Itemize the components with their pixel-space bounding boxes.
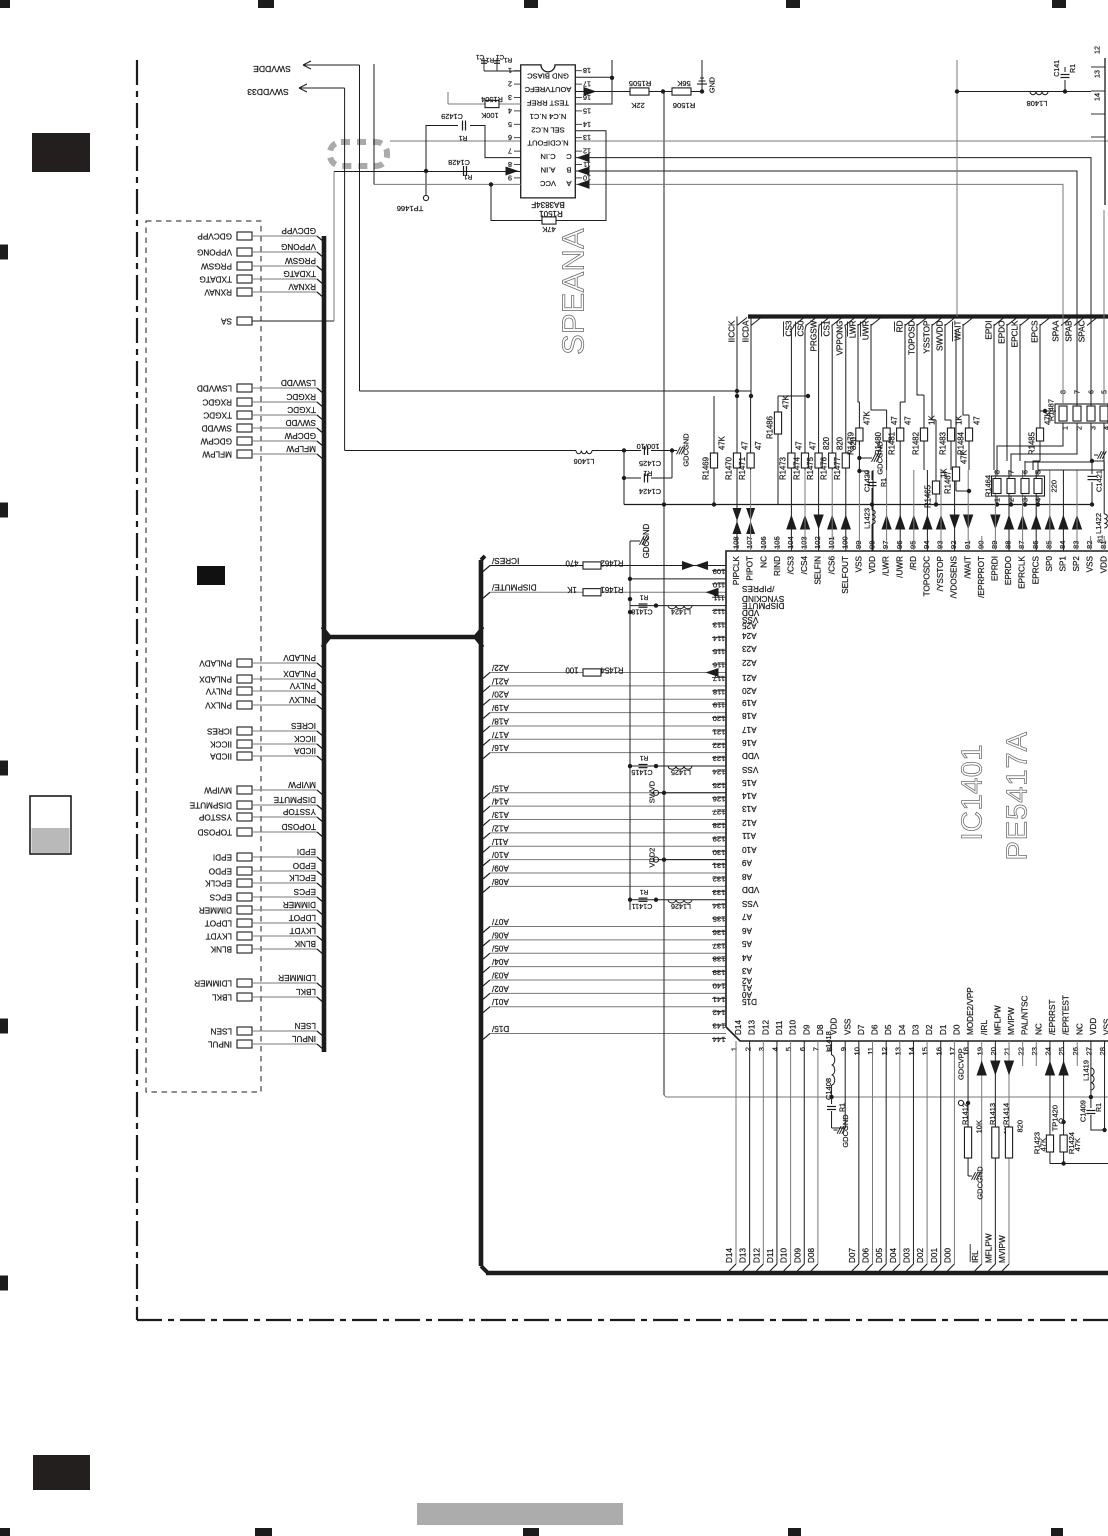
svg-text:L1422: L1422 [1094, 513, 1103, 534]
svg-text:47: 47 [903, 416, 912, 425]
svg-text:/LWR: /LWR [882, 556, 891, 576]
svg-text:A14: A14 [742, 791, 757, 800]
svg-text:A7: A7 [742, 912, 752, 921]
svg-text:A07/: A07/ [491, 917, 509, 926]
svg-text:A24: A24 [742, 631, 757, 640]
svg-text:107: 107 [745, 536, 754, 549]
svg-text:A9: A9 [742, 858, 752, 867]
svg-text:R1470: R1470 [724, 456, 733, 480]
svg-text:47: 47 [972, 416, 981, 425]
svg-text:C1420: C1420 [863, 470, 872, 492]
svg-text:LBKL: LBKL [212, 993, 232, 1002]
svg-text:L1424: L1424 [671, 608, 691, 617]
svg-text:MFLPW: MFLPW [984, 1233, 993, 1263]
svg-text:A22: A22 [742, 658, 757, 667]
svg-text:A22/: A22/ [491, 663, 509, 672]
svg-text:100: 100 [565, 665, 579, 674]
svg-text:89: 89 [990, 541, 999, 549]
svg-text:A10: A10 [742, 845, 757, 854]
svg-text:CS1: CS1 [823, 320, 832, 336]
svg-text:DISPMUTE: DISPMUTE [189, 801, 232, 810]
svg-text:VSS: VSS [741, 765, 758, 774]
svg-text:VDD: VDD [742, 751, 759, 760]
svg-text:47K: 47K [542, 225, 556, 234]
svg-text:15: 15 [921, 1047, 930, 1055]
svg-text:9: 9 [839, 1047, 848, 1051]
svg-text:SWVDD: SWVDD [936, 320, 945, 351]
svg-text:R1474: R1474 [792, 456, 801, 480]
svg-text:VPPONG: VPPONG [281, 242, 316, 251]
svg-text:104: 104 [786, 536, 795, 549]
svg-text:L1419: L1419 [1081, 1060, 1090, 1081]
svg-text:143: 143 [713, 1022, 726, 1031]
svg-text:A17: A17 [742, 725, 757, 734]
svg-text:GDCGND: GDCGND [876, 441, 885, 475]
svg-text:129: 129 [713, 834, 726, 843]
svg-text:27: 27 [1085, 1047, 1094, 1055]
svg-text:VSS: VSS [843, 1018, 852, 1035]
svg-text:A16: A16 [742, 738, 757, 747]
svg-text:PNLYV: PNLYV [289, 681, 316, 690]
svg-text:RXNAV: RXNAV [204, 288, 232, 297]
svg-text:85: 85 [1044, 541, 1053, 549]
svg-text:2: 2 [1074, 426, 1083, 430]
svg-text:R1: R1 [639, 888, 648, 895]
svg-text:YSSTOP: YSSTOP [923, 320, 932, 354]
svg-text:TXGDC: TXGDC [287, 405, 316, 414]
svg-text:TOPOSD: TOPOSD [197, 828, 232, 837]
svg-text:R1465: R1465 [923, 484, 932, 508]
svg-text:3: 3 [757, 1047, 766, 1051]
svg-text:A19/: A19/ [491, 703, 509, 712]
svg-text:RD: RD [896, 320, 905, 332]
svg-text:D10: D10 [789, 1020, 798, 1035]
svg-text:/PIPRES: /PIPRES [741, 584, 774, 593]
svg-text:100: 100 [840, 536, 849, 549]
svg-text:MVIPW: MVIPW [204, 786, 232, 795]
svg-text:VDD: VDD [1099, 556, 1108, 573]
svg-text:A25: A25 [742, 621, 757, 630]
svg-text:D15/: D15/ [491, 1024, 509, 1033]
svg-text:NC: NC [1075, 1023, 1084, 1035]
svg-text:LDPOT: LDPOT [205, 919, 232, 928]
svg-text:A08/: A08/ [491, 877, 509, 886]
svg-text:INPUL: INPUL [207, 1040, 232, 1049]
svg-text:118: 118 [713, 687, 725, 696]
svg-text:EPDI: EPDI [985, 321, 994, 340]
svg-text:BLNK: BLNK [210, 945, 232, 954]
svg-text:90: 90 [976, 541, 985, 549]
svg-text:R1479: R1479 [847, 432, 856, 455]
svg-text:A12/: A12/ [491, 823, 509, 832]
svg-text:PNLADX: PNLADX [199, 675, 232, 684]
svg-text:C1421: C1421 [1095, 470, 1104, 492]
svg-text:SWVDD: SWVDD [201, 424, 232, 433]
svg-text:D10: D10 [780, 1248, 789, 1263]
svg-text:D08: D08 [807, 1248, 816, 1263]
svg-text:EPDO: EPDO [293, 861, 316, 870]
svg-text:EPRCS: EPRCS [1031, 555, 1040, 584]
svg-text:VCC: VCC [539, 179, 556, 188]
svg-text:R1414: R1414 [1002, 1103, 1011, 1125]
svg-text:LDPOT: LDPOT [289, 913, 316, 922]
svg-text:2: 2 [743, 1047, 752, 1051]
svg-text:A13: A13 [742, 804, 757, 813]
svg-text:C1: C1 [495, 53, 504, 60]
svg-text:A.IN: A.IN [541, 166, 556, 175]
svg-text:56K: 56K [677, 79, 691, 88]
svg-text:D12: D12 [761, 1020, 770, 1035]
svg-text:117: 117 [713, 674, 725, 683]
svg-text:14: 14 [907, 1047, 916, 1055]
svg-text:SPAA: SPAA [1052, 320, 1061, 342]
svg-text:D3: D3 [912, 1024, 921, 1035]
svg-text:GDCVPP: GDCVPP [197, 232, 232, 241]
svg-text:UWR: UWR [862, 320, 871, 340]
svg-text:81: 81 [1096, 535, 1105, 543]
svg-text:A06/: A06/ [491, 930, 509, 939]
svg-text:140: 140 [713, 981, 726, 990]
svg-text:13: 13 [1092, 70, 1101, 78]
svg-text:YSSTOP: YSSTOP [282, 807, 316, 816]
svg-text:A21/: A21/ [491, 676, 509, 685]
svg-text:A13/: A13/ [491, 810, 509, 819]
svg-text:IICDA: IICDA [210, 752, 232, 761]
svg-text:YSSTOP: YSSTOP [198, 813, 232, 822]
svg-text:A16/: A16/ [491, 743, 509, 752]
svg-text:5: 5 [784, 1047, 793, 1051]
svg-text:A15: A15 [742, 778, 757, 787]
svg-text:28: 28 [1098, 1047, 1107, 1055]
svg-text:TXGDC: TXGDC [203, 411, 232, 420]
svg-text:D9: D9 [802, 1024, 811, 1035]
svg-text:L1406: L1406 [574, 457, 595, 466]
svg-text:95: 95 [908, 541, 917, 549]
svg-text:47K: 47K [1039, 1138, 1048, 1151]
svg-text:SELFIN: SELFIN [814, 556, 823, 585]
svg-text:PRGSW: PRGSW [201, 262, 232, 271]
svg-text:A18/: A18/ [491, 716, 509, 725]
svg-text:D11: D11 [766, 1248, 775, 1263]
svg-text:R1: R1 [1070, 64, 1077, 73]
svg-text:14: 14 [1092, 93, 1101, 101]
svg-text:SWVDD33: SWVDD33 [247, 87, 289, 97]
svg-text:83: 83 [1072, 541, 1081, 549]
svg-text:92: 92 [949, 541, 958, 549]
svg-text:EPDO: EPDO [209, 867, 232, 876]
svg-text:141: 141 [713, 995, 726, 1004]
svg-text:TXDATG: TXDATG [199, 275, 232, 284]
svg-text:470: 470 [565, 559, 579, 568]
svg-text:A17/: A17/ [491, 730, 509, 739]
svg-text:R1: R1 [463, 173, 472, 180]
svg-text:D7: D7 [857, 1024, 866, 1035]
svg-text:VDD: VDD [868, 556, 877, 573]
svg-text:EPCLK: EPCLK [289, 873, 316, 882]
svg-text:D14: D14 [734, 1020, 743, 1035]
svg-text:121: 121 [713, 727, 726, 736]
svg-text:47: 47 [740, 441, 749, 450]
svg-text:108: 108 [732, 536, 741, 549]
svg-text:97: 97 [881, 541, 890, 549]
svg-text:86: 86 [1031, 541, 1040, 549]
svg-text:BA3834F: BA3834F [531, 200, 564, 209]
svg-text:4: 4 [1101, 426, 1108, 430]
svg-text:106: 106 [759, 536, 768, 549]
svg-text:3: 3 [508, 93, 512, 102]
svg-text:114: 114 [713, 634, 725, 643]
svg-text:A4: A4 [742, 953, 752, 962]
svg-text:A09/: A09/ [491, 864, 509, 873]
svg-text:A12: A12 [742, 818, 757, 827]
svg-text:EPRDI: EPRDI [990, 556, 999, 581]
svg-text:SWVD: SWVD [648, 780, 657, 803]
svg-text:21: 21 [1003, 1047, 1012, 1055]
svg-text:A04/: A04/ [491, 957, 509, 966]
svg-text:C1428: C1428 [448, 158, 470, 167]
svg-text:MVIPW: MVIPW [288, 780, 316, 789]
svg-text:23: 23 [1030, 1047, 1039, 1055]
svg-text:PNLADV: PNLADV [199, 659, 232, 668]
svg-text:EPDI: EPDI [213, 853, 232, 862]
svg-text:EPRDO: EPRDO [1004, 556, 1013, 585]
svg-text:D2: D2 [925, 1024, 934, 1035]
svg-text:100K: 100K [481, 111, 498, 120]
svg-text:D6: D6 [871, 1024, 880, 1035]
svg-text:D13: D13 [748, 1020, 757, 1035]
svg-text:PIPCLK: PIPCLK [732, 555, 741, 585]
svg-text:/CS6: /CS6 [827, 556, 836, 575]
svg-text:IRL: IRL [971, 1250, 980, 1263]
svg-text:R1462: R1462 [601, 559, 624, 568]
svg-text:47: 47 [795, 441, 804, 450]
svg-text:R1486: R1486 [765, 416, 774, 439]
svg-text:VDD2: VDD2 [648, 848, 657, 868]
svg-text:GND BIASC: GND BIASC [527, 72, 569, 81]
svg-text:C1411: C1411 [632, 902, 653, 911]
svg-text:25: 25 [1057, 1047, 1066, 1055]
svg-text:132: 132 [713, 875, 726, 884]
svg-text:14: 14 [583, 120, 591, 129]
svg-text:R1482: R1482 [911, 432, 920, 455]
svg-text:11: 11 [866, 1047, 875, 1055]
svg-text:134: 134 [713, 901, 726, 910]
svg-text:136: 136 [713, 928, 726, 937]
svg-text:RXGDC: RXGDC [202, 398, 232, 407]
svg-text:138: 138 [713, 955, 726, 964]
svg-text:VSS: VSS [1103, 1018, 1108, 1035]
svg-text:D07: D07 [848, 1248, 857, 1263]
svg-text:D06: D06 [862, 1248, 871, 1263]
svg-text:R1: R1 [1096, 1103, 1103, 1112]
svg-text:LDIMMER: LDIMMER [278, 973, 316, 982]
svg-text:110: 110 [713, 580, 725, 589]
svg-text:EPCLK: EPCLK [205, 879, 232, 888]
svg-text:BLNK: BLNK [294, 939, 316, 948]
svg-text:DIMMER: DIMMER [199, 906, 232, 915]
svg-text:144: 144 [713, 1035, 726, 1044]
svg-text:820: 820 [822, 436, 831, 450]
svg-text:L1408: L1408 [1027, 99, 1048, 108]
svg-text:6: 6 [508, 133, 512, 142]
svg-text:119: 119 [713, 701, 725, 710]
svg-text:R1: R1 [639, 594, 648, 601]
svg-text:94: 94 [922, 541, 931, 549]
svg-text:/EPRPROT: /EPRPROT [977, 556, 986, 598]
svg-text:7: 7 [812, 1047, 821, 1051]
svg-text:13: 13 [583, 133, 591, 142]
svg-text:D12: D12 [752, 1248, 761, 1263]
svg-text:VSS: VSS [854, 555, 863, 572]
svg-text:C141: C141 [1054, 60, 1061, 77]
svg-text:20: 20 [989, 1047, 998, 1055]
svg-text:26: 26 [1071, 1047, 1080, 1055]
svg-text:MFLPW: MFLPW [202, 450, 232, 459]
svg-text:6: 6 [798, 1047, 807, 1051]
svg-text:12: 12 [880, 1047, 889, 1055]
svg-text:EPRCLK: EPRCLK [1018, 555, 1027, 588]
svg-text:A20: A20 [742, 686, 757, 695]
svg-text:142: 142 [713, 1008, 726, 1017]
svg-text:L1425: L1425 [671, 768, 691, 777]
svg-text:GDCGND: GDCGND [682, 433, 691, 467]
svg-text:/CS4: /CS4 [800, 556, 809, 575]
svg-text:122: 122 [713, 741, 726, 750]
svg-text:RXGDC: RXGDC [286, 392, 316, 401]
svg-text:EPCS: EPCS [293, 887, 316, 896]
svg-text:R1475: R1475 [806, 456, 815, 480]
svg-text:GDCPW: GDCPW [284, 431, 316, 440]
svg-text:PNLADV: PNLADV [283, 653, 316, 662]
svg-text:ICRES: ICRES [290, 721, 316, 730]
svg-text:PIPOT: PIPOT [746, 556, 755, 581]
svg-text:EPDO: EPDO [998, 321, 1007, 344]
svg-text:1K: 1K [566, 585, 576, 594]
svg-text:SWVDD: SWVDD [285, 418, 316, 427]
svg-text:99: 99 [854, 541, 863, 549]
svg-text:SP1: SP1 [1058, 556, 1067, 572]
svg-text:A21: A21 [742, 673, 757, 682]
svg-text:SPAB: SPAB [1065, 320, 1074, 342]
svg-text:SEL N.C2: SEL N.C2 [531, 125, 564, 134]
svg-text:D14: D14 [725, 1248, 734, 1263]
svg-text:MVIPW: MVIPW [1007, 1007, 1016, 1035]
svg-text:/RD: /RD [909, 556, 918, 570]
svg-text:C: C [566, 152, 572, 161]
svg-text:R1: R1 [643, 469, 652, 476]
svg-text:47K: 47K [781, 394, 790, 409]
svg-text:105: 105 [772, 536, 781, 549]
svg-text:LSWVDD: LSWVDD [281, 378, 316, 387]
svg-text:/UWR: /UWR [895, 556, 904, 578]
svg-text:131: 131 [713, 861, 726, 870]
svg-text:R1454: R1454 [600, 665, 624, 674]
svg-text:R1483: R1483 [938, 432, 947, 455]
svg-text:IICCK: IICCK [210, 740, 232, 749]
svg-text:MFLPW: MFLPW [286, 444, 316, 453]
svg-text:LKYDT: LKYDT [290, 926, 316, 935]
svg-text:13: 13 [893, 1047, 902, 1055]
svg-text:3: 3 [1088, 426, 1097, 430]
svg-text:PNLADX: PNLADX [283, 669, 316, 678]
svg-text:82: 82 [1085, 541, 1094, 549]
svg-text:9: 9 [508, 173, 512, 182]
svg-text:4: 4 [771, 1047, 780, 1051]
svg-text:RXNAV: RXNAV [288, 282, 316, 291]
svg-text:137: 137 [713, 941, 726, 950]
svg-text:126: 126 [713, 794, 726, 803]
svg-text:DISPMUTE/: DISPMUTE/ [491, 583, 536, 592]
svg-text:116: 116 [713, 661, 725, 670]
svg-text:A3: A3 [742, 966, 752, 975]
svg-text:103: 103 [800, 536, 809, 549]
svg-text:820: 820 [835, 436, 844, 450]
svg-text:LSEN: LSEN [211, 1027, 232, 1036]
svg-text:L1423: L1423 [863, 508, 872, 529]
svg-text:R1: R1 [503, 56, 512, 63]
svg-text:TEST RREF: TEST RREF [527, 99, 569, 108]
svg-text:R1506: R1506 [673, 101, 695, 110]
svg-text:18: 18 [583, 66, 591, 75]
svg-text:102: 102 [813, 536, 822, 549]
svg-text:IC1401: IC1401 [956, 744, 988, 841]
svg-text:R1505: R1505 [629, 79, 651, 88]
svg-text:SPAC: SPAC [1078, 320, 1087, 342]
svg-text:D1: D1 [939, 1024, 948, 1035]
svg-text:R1: R1 [881, 478, 888, 487]
svg-text:EPCLK: EPCLK [1011, 320, 1020, 347]
svg-text:124: 124 [713, 768, 726, 777]
svg-text:123: 123 [713, 754, 726, 763]
svg-text:C1408: C1408 [824, 1078, 833, 1100]
svg-text:15: 15 [583, 106, 591, 115]
svg-text:47K: 47K [959, 449, 968, 464]
svg-text:A5: A5 [742, 939, 752, 948]
svg-text:130: 130 [713, 848, 726, 857]
svg-text:B: B [566, 166, 571, 175]
svg-text:GDCVPP: GDCVPP [957, 1048, 966, 1080]
svg-text:133: 133 [713, 888, 726, 897]
svg-text:N.C4 N.C1: N.C4 N.C1 [530, 112, 567, 121]
svg-text:101: 101 [827, 536, 836, 549]
svg-text:VSS: VSS [741, 899, 758, 908]
svg-text:LDIMMER: LDIMMER [194, 979, 232, 988]
svg-text:111: 111 [713, 594, 725, 603]
svg-text:/IRL: /IRL [980, 1020, 989, 1035]
svg-text:A8: A8 [742, 872, 752, 881]
svg-text:A6: A6 [742, 926, 752, 935]
svg-text:ICRES/: ICRES/ [491, 556, 519, 565]
svg-text:R1477: R1477 [833, 457, 842, 480]
svg-text:EPDI: EPDI [297, 847, 316, 856]
svg-text:RIND: RIND [773, 556, 782, 576]
svg-text:22K: 22K [631, 101, 645, 110]
svg-text:R1: R1 [485, 56, 494, 63]
svg-text:93: 93 [936, 541, 945, 549]
svg-text:CS0: CS0 [797, 320, 806, 336]
svg-text:R1487: R1487 [1047, 399, 1056, 421]
svg-text:R1473: R1473 [779, 457, 788, 480]
svg-text:A11: A11 [742, 831, 756, 840]
svg-text:PAL/NTSC: PAL/NTSC [1021, 995, 1030, 1035]
svg-text:SA: SA [221, 317, 232, 326]
svg-text:R1412: R1412 [961, 1103, 970, 1125]
svg-text:D11: D11 [775, 1020, 784, 1035]
svg-text:WAIT: WAIT [954, 321, 963, 341]
svg-text:A14/: A14/ [491, 797, 509, 806]
svg-text:D05: D05 [875, 1248, 884, 1263]
svg-text:L1426: L1426 [671, 902, 691, 911]
